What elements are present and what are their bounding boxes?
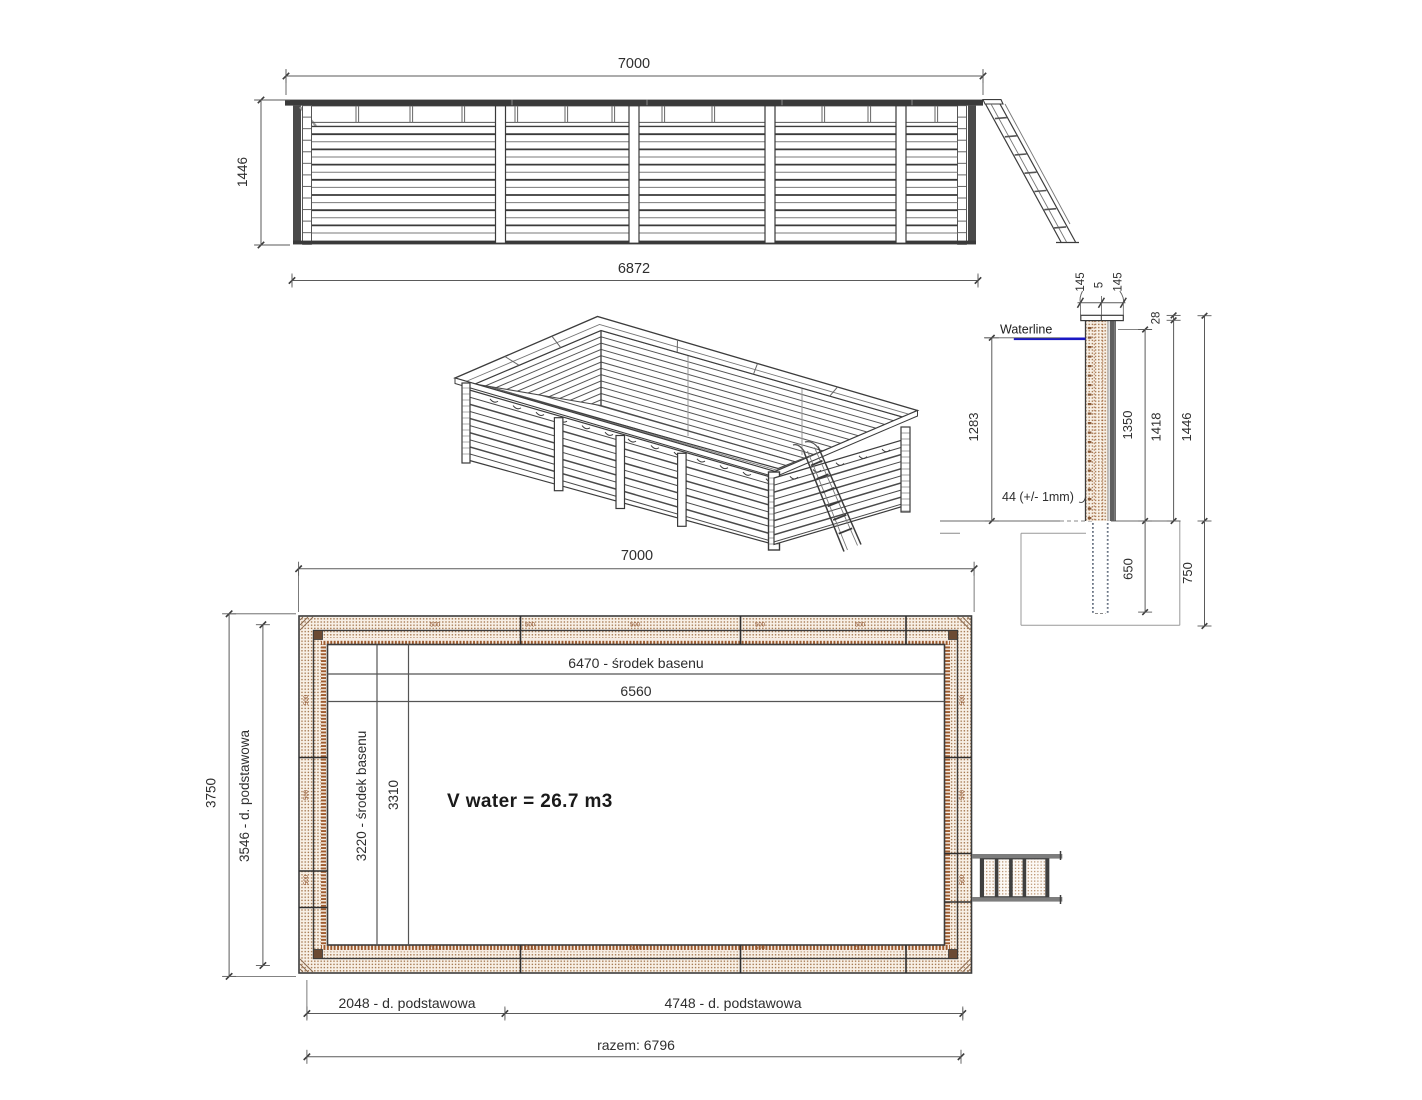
svg-text:500: 500 — [755, 623, 766, 629]
svg-text:500: 500 — [430, 946, 441, 952]
svg-text:5: 5 — [1094, 282, 1106, 288]
svg-text:3546 - d. podstawowa: 3546 - d. podstawowa — [237, 729, 252, 862]
svg-text:500: 500 — [525, 623, 536, 629]
svg-text:6470 - środek basenu: 6470 - środek basenu — [568, 655, 703, 671]
svg-text:razem: 6796: razem: 6796 — [597, 1037, 675, 1053]
svg-text:500: 500 — [304, 874, 310, 885]
svg-text:6872: 6872 — [618, 261, 650, 277]
svg-text:1446: 1446 — [235, 157, 250, 187]
svg-text:1418: 1418 — [1149, 413, 1164, 442]
svg-text:500: 500 — [430, 623, 441, 629]
svg-text:Waterline: Waterline — [1000, 323, 1052, 337]
svg-text:3220 - środek basenu: 3220 - środek basenu — [354, 731, 369, 862]
svg-text:2048 - d. podstawowa: 2048 - d. podstawowa — [339, 995, 476, 1011]
svg-text:750: 750 — [1180, 562, 1195, 584]
svg-text:28: 28 — [1151, 312, 1163, 325]
svg-text:650: 650 — [1121, 558, 1136, 580]
svg-text:500: 500 — [855, 946, 866, 952]
svg-text:7000: 7000 — [621, 548, 653, 564]
svg-text:145: 145 — [1113, 272, 1125, 291]
svg-text:V water = 26.7 m3: V water = 26.7 m3 — [447, 791, 613, 812]
svg-text:500: 500 — [630, 623, 641, 629]
svg-text:1283: 1283 — [966, 413, 981, 442]
svg-text:3750: 3750 — [204, 778, 219, 808]
svg-text:145: 145 — [1075, 272, 1087, 291]
svg-text:1350: 1350 — [1120, 411, 1135, 440]
svg-text:500: 500 — [304, 789, 310, 800]
svg-text:500: 500 — [960, 694, 966, 705]
svg-text:500: 500 — [304, 694, 310, 705]
svg-text:1446: 1446 — [1179, 413, 1194, 442]
svg-text:44 (+/- 1mm): 44 (+/- 1mm) — [1002, 490, 1074, 504]
svg-text:500: 500 — [630, 946, 641, 952]
svg-text:500: 500 — [855, 623, 866, 629]
svg-text:500: 500 — [755, 946, 766, 952]
svg-text:500: 500 — [525, 946, 536, 952]
svg-text:4748 - d. podstawowa: 4748 - d. podstawowa — [665, 995, 802, 1011]
svg-text:500: 500 — [960, 789, 966, 800]
svg-text:3310: 3310 — [386, 780, 401, 810]
svg-text:6560: 6560 — [620, 683, 651, 699]
svg-text:500: 500 — [960, 874, 966, 885]
svg-text:7000: 7000 — [618, 56, 650, 72]
